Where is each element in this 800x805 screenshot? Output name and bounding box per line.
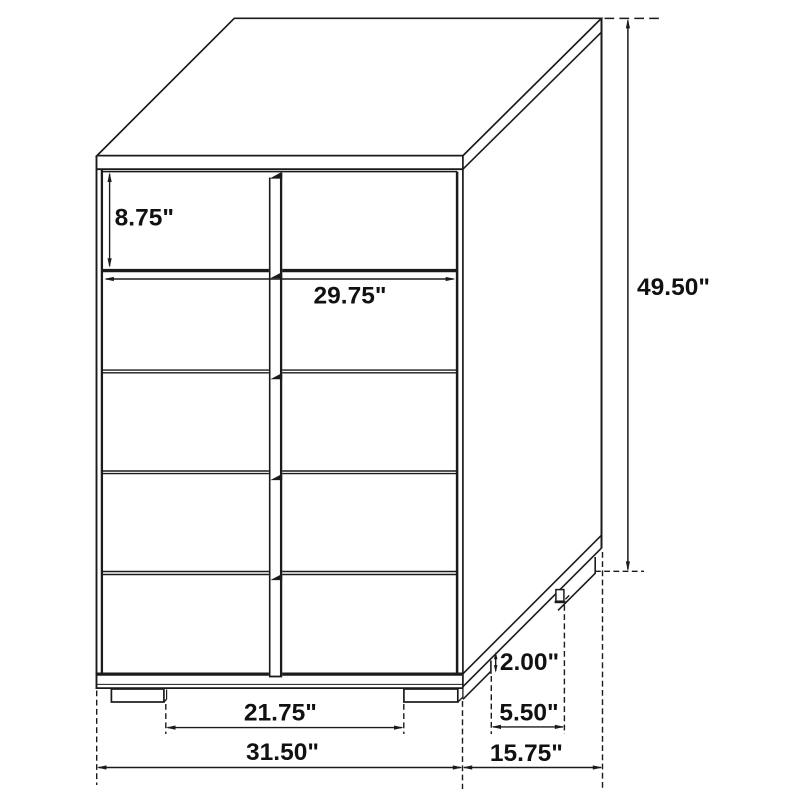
svg-text:49.50": 49.50" <box>637 274 710 301</box>
svg-text:15.75": 15.75" <box>490 740 563 767</box>
svg-text:21.75": 21.75" <box>244 700 317 727</box>
svg-text:5.50": 5.50" <box>499 700 558 727</box>
svg-text:31.50": 31.50" <box>246 739 319 766</box>
svg-text:2.00": 2.00" <box>500 649 559 676</box>
svg-text:8.75": 8.75" <box>115 204 174 231</box>
svg-text:29.75": 29.75" <box>314 283 387 310</box>
